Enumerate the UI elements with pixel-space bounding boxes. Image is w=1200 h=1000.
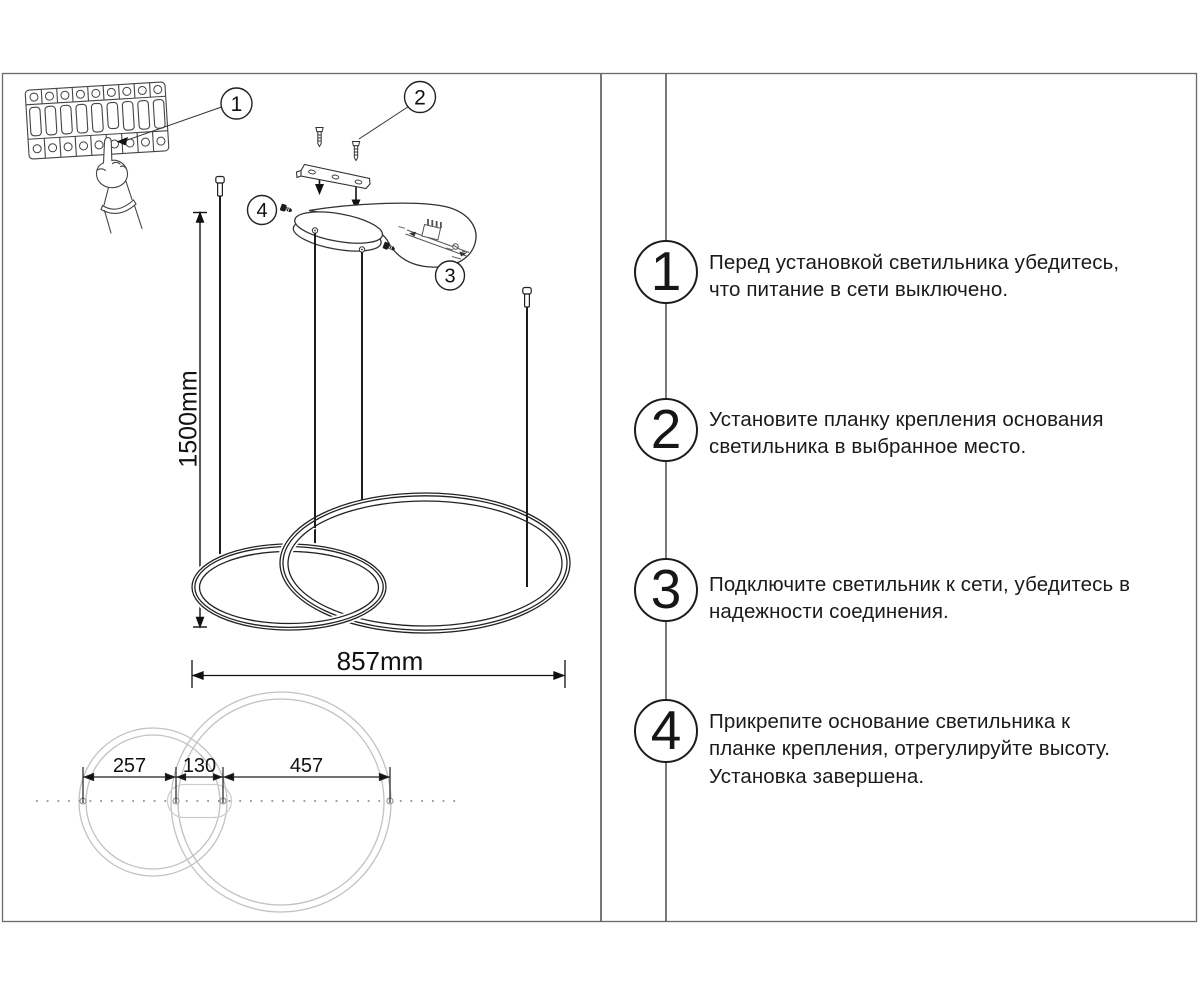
installation-diagram: 1 2 — [0, 0, 1200, 1000]
step-4-number: 4 — [634, 699, 698, 763]
callout-3-number: 3 — [444, 266, 455, 288]
drop-height-label: 1500mm — [175, 370, 203, 467]
step-text-line: что питание в сети выключено. — [709, 276, 1119, 303]
step-1-text: Перед установкой светильника убедитесь, … — [709, 249, 1119, 304]
step-4-text: Прикрепите основание светильника к планк… — [709, 708, 1110, 790]
callout-2-number: 2 — [414, 87, 426, 110]
page-frame — [3, 74, 1197, 922]
step-text-line: Перед установкой светильника убедитесь, — [709, 249, 1119, 276]
step-3-text: Подключите светильник к сети, убедитесь … — [709, 571, 1130, 626]
step-text-line: Установка завершена. — [709, 763, 1110, 790]
step-text-line: Прикрепите основание светильника к — [709, 708, 1110, 735]
step-3-number: 3 — [634, 558, 698, 622]
callout-1-number: 1 — [231, 93, 243, 116]
plan-dim-right: 457 — [290, 755, 323, 777]
step-text-line: Установите планку крепления основания — [709, 406, 1104, 433]
overall-width-label: 857mm — [337, 646, 424, 676]
step-1-number: 1 — [634, 240, 698, 304]
step-text-line: надежности соединения. — [709, 598, 1130, 625]
plan-dimensions: 257 130 457 — [83, 755, 390, 803]
step-text-line: планке крепления, отрегулируйте высоту. — [709, 735, 1110, 762]
mounting-screw-icon — [316, 128, 323, 147]
plan-dim-left: 257 — [113, 755, 146, 777]
mounting-bracket — [297, 165, 371, 189]
plan-rings — [79, 692, 391, 912]
callout-2: 2 — [359, 82, 436, 140]
cable-gripper — [523, 288, 531, 308]
mounting-screw-icon — [352, 142, 359, 161]
plan-view: 257 130 457 — [36, 692, 460, 912]
instruction-sheet: 1 2 — [0, 0, 1200, 1000]
small-screw-icon — [280, 204, 294, 215]
step-2-number: 2 — [634, 398, 698, 462]
callout-3: 3 — [436, 261, 465, 290]
cable-gripper — [216, 177, 224, 197]
breaker-panel-sketch — [25, 82, 169, 159]
plan-anchor-points — [80, 798, 393, 804]
plan-dim-center: 130 — [183, 755, 216, 777]
suspension-cables — [220, 196, 527, 587]
step-text-line: Подключите светильник к сети, убедитесь … — [709, 571, 1130, 598]
callout-4-number: 4 — [256, 200, 267, 222]
dimension-overall-width: 857mm — [192, 646, 565, 688]
callout-4: 4 — [248, 196, 277, 225]
step-2-text: Установите планку крепления основания св… — [709, 406, 1104, 461]
step-text-line: светильника в выбранное место. — [709, 433, 1104, 460]
